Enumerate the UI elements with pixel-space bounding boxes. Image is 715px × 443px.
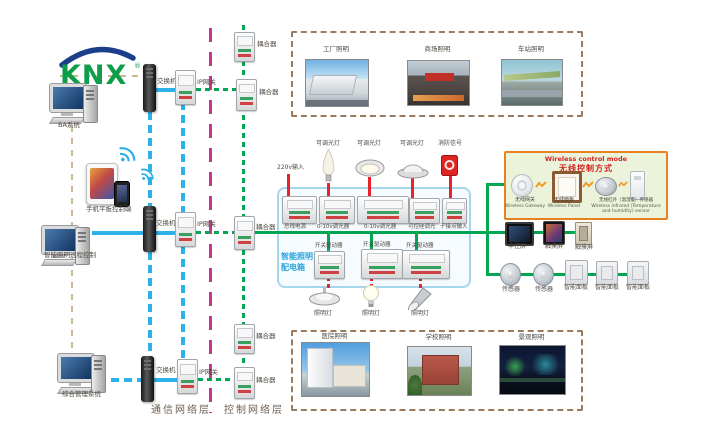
wireless-link-icon	[582, 180, 594, 190]
switch-top-label: 交换机	[157, 78, 177, 85]
remote-control-label: 智能照明远程控制	[44, 252, 96, 259]
monitor-icon	[42, 226, 78, 254]
comm-line-gateway-vert-b	[181, 246, 185, 361]
station-lighting-label: 车站照明	[501, 46, 561, 53]
load-line-3	[411, 177, 414, 199]
sensor-label: 传感器	[502, 287, 520, 294]
landscape-lighting-photo	[499, 345, 566, 395]
ctrl-line-top	[196, 88, 238, 91]
switch-actuator-1	[314, 251, 345, 279]
wall-sensor-icon	[630, 171, 645, 200]
coupler-1-label: 耦合器	[257, 41, 277, 48]
smart-panel-label: 智能面板	[564, 285, 588, 292]
bulb-lamp-icon	[363, 284, 379, 309]
ip-gateway-bottom-label: IP网关	[199, 369, 218, 376]
wireless-control-box: Wireless control mode 无线控制方式 无线网关 Wirele…	[504, 151, 668, 220]
monitor-icon	[50, 84, 86, 112]
monitor-icon	[58, 354, 94, 382]
switch-actuator-3	[402, 250, 450, 279]
smart-panel-label: 智能面板	[626, 285, 650, 292]
comm-line-mid	[92, 231, 180, 235]
switch-actuator-label: 开关驱动器	[406, 243, 434, 249]
switch-bottom-label: 交换机	[156, 367, 176, 374]
computer-remote-control	[42, 226, 92, 266]
knx-logo: KNX ®	[55, 38, 145, 90]
load-line-2	[368, 177, 371, 198]
communication-layer-label: 通信网络层	[151, 401, 211, 416]
comm-line-gateway-vert-a	[181, 102, 185, 214]
fire-signal-line	[449, 176, 452, 200]
wireless-infrared-sensor-icon	[595, 177, 617, 196]
wifi-icon	[136, 164, 158, 186]
distribution-box-title: 智能照明 配电箱	[281, 252, 313, 274]
wireless-panel-label: 无线面板 Wireless Panel	[544, 198, 584, 209]
touch-screen-2	[575, 222, 592, 245]
factory-lighting-label: 工厂照明	[305, 46, 367, 53]
smart-panel-2	[596, 261, 618, 285]
bus-power-label: 总线电源	[284, 224, 306, 230]
smart-panel-3	[627, 261, 649, 285]
bus-power-supply	[282, 196, 317, 224]
candle-lamp-icon	[322, 149, 335, 183]
touch-screen-1	[543, 221, 565, 245]
touch-screen-label: 触摸屏	[545, 244, 563, 251]
coupler-2	[236, 79, 257, 111]
wireless-title-en: Wireless control mode	[506, 155, 666, 163]
coupler-5	[234, 367, 255, 399]
landscape-lighting-label: 景观照明	[499, 334, 564, 341]
thyristor-dimmer	[409, 198, 440, 224]
coupler-1	[234, 32, 255, 62]
power-input-line	[287, 174, 290, 197]
mall-lighting-photo	[407, 60, 470, 106]
sensor-label: 传感器	[535, 287, 553, 294]
switch-mid-label: 交换机	[156, 220, 176, 227]
dimmer-0-10v-wide	[357, 196, 409, 224]
dimmable-lamp-label: 可调光灯	[313, 141, 343, 148]
dimmable-lamp-label: 可调光灯	[354, 141, 384, 148]
smart-panel-label: 智能面板	[595, 285, 619, 292]
computer-ba-system	[50, 84, 100, 124]
control-layer-label: 控制网络层	[224, 401, 284, 416]
switch-actuator-label: 开关驱动器	[363, 242, 391, 248]
dimmer-0-10v	[319, 196, 355, 224]
lamp-label: 照明灯	[314, 311, 332, 318]
ctrl-branch-vert	[486, 184, 489, 276]
ceiling-lamp-icon	[397, 161, 429, 179]
dimmer-label: 0-10v调光器	[364, 224, 396, 230]
ip-gateway-mid	[175, 212, 196, 247]
management-system-label: 综合管理系统	[62, 391, 101, 398]
comm-line-switch-vert-b	[148, 252, 152, 358]
computer-management-system	[58, 354, 108, 394]
pc-tower-icon	[83, 85, 98, 123]
ctrl-line-bottom	[198, 378, 237, 381]
coupler-2-label: 耦合器	[259, 89, 279, 96]
switch-actuator-2	[361, 249, 403, 279]
switch-mid	[143, 206, 156, 252]
touch-screen-label: 触摸屏	[575, 245, 593, 252]
school-lighting-photo	[407, 346, 472, 396]
ctrl-wireless-feed	[486, 183, 506, 186]
saucer-lamp-icon	[308, 287, 341, 308]
fire-alarm-icon	[441, 155, 458, 176]
wireless-gateway-icon	[511, 174, 533, 197]
hospital-lighting-label: 医院照明	[301, 333, 368, 340]
mobile-control-label: 手机平板控制端	[86, 206, 132, 213]
switch-actuator-label: 开关驱动器	[315, 243, 343, 249]
ip-gateway-top-label: IP网关	[197, 79, 216, 86]
dimmable-lamp-label: 可调光灯	[397, 141, 427, 148]
coupler-3-label: 耦合器	[256, 224, 276, 231]
lamp-label: 照明灯	[411, 311, 429, 318]
hospital-lighting-photo	[301, 342, 370, 397]
comm-line-switch-vert-a	[148, 112, 152, 208]
central-screen-label: 中控屏	[508, 244, 526, 251]
lamp-label: 照明灯	[362, 311, 380, 318]
switch-bottom	[141, 356, 154, 402]
ctrl-line-mid	[196, 231, 238, 234]
downlight-icon	[355, 159, 385, 179]
ba-system-label: BA系统	[58, 122, 80, 129]
ctrl-bus-main	[253, 231, 592, 234]
mall-lighting-label: 商场照明	[407, 46, 468, 53]
knx-lighting-network-diagram: KNX ® BA系统 手机平板控制端 智能照明远程控制 综合管理系统 交换机 I…	[0, 0, 715, 443]
smart-panel-1	[565, 260, 588, 285]
sensor-dome-2	[533, 263, 554, 286]
wireless-link-icon	[535, 180, 547, 190]
thyristor-dimmer-label: 可控硅调光	[408, 224, 436, 230]
dry-contact-input	[442, 198, 467, 224]
ip-gateway-top	[175, 70, 196, 105]
factory-lighting-photo	[305, 59, 369, 107]
logo-registered-mark: ®	[134, 62, 141, 70]
ip-gateway-mid-label: IP网关	[197, 221, 216, 228]
station-lighting-photo	[501, 59, 563, 106]
dry-contact-label: 干接点输入	[440, 224, 468, 230]
coupler-3	[234, 216, 255, 250]
school-lighting-label: 学校照明	[407, 334, 470, 341]
coupler-4-label: 耦合器	[256, 333, 276, 340]
power-input-label: 220v输入	[277, 165, 304, 172]
fire-signal-label: 消防信号	[435, 141, 465, 148]
ip-gateway-bottom	[177, 359, 198, 394]
switch-top	[143, 64, 156, 112]
smartphone-icon	[114, 181, 130, 207]
wireless-gateway-label: 无线网关 Wireless Gateway	[503, 198, 547, 209]
sensor-dome-1	[500, 263, 521, 286]
spotlight-lamp-icon	[407, 285, 434, 310]
coupler-4	[234, 324, 255, 354]
wireless-link-icon	[618, 180, 628, 189]
dimmer-label: 0-10v调光器	[317, 224, 349, 230]
wireless-infrared-sensor-label: 无线红外（温湿度）传感器 Wireless infrared (Temperat…	[588, 198, 664, 214]
coupler-5-label: 耦合器	[256, 377, 276, 384]
pc-tower-icon	[91, 355, 106, 393]
